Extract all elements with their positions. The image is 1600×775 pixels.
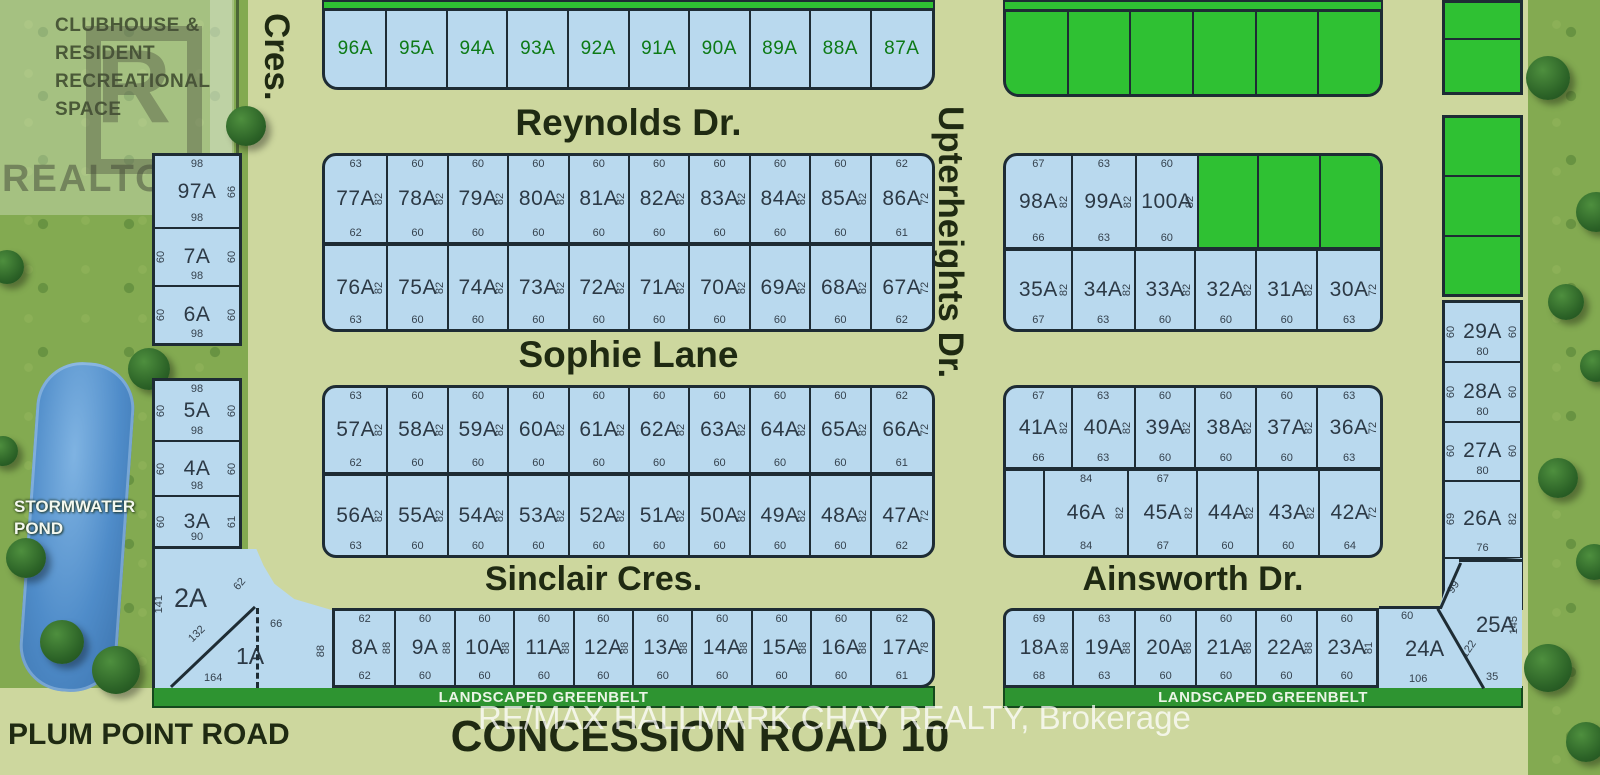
lot-76A: 638276A <box>325 246 386 329</box>
dim-bottom: 63 <box>350 315 362 326</box>
lot-row-sold-top-right <box>1003 9 1383 97</box>
dim-right: 66 <box>227 185 238 197</box>
lot-id: 82A <box>640 187 679 211</box>
lot-id: 41A <box>1019 416 1058 440</box>
lot-36A: 63637236A <box>1316 388 1380 467</box>
dim-88: 88 <box>316 645 327 657</box>
dim-bottom: 60 <box>532 228 544 239</box>
lot-sold <box>1445 38 1520 92</box>
dim-side: 82 <box>1059 421 1070 433</box>
lot-id: 93A <box>520 38 555 60</box>
dim-bottom: 84 <box>1080 541 1092 552</box>
lot-col-sold-far-right-top <box>1442 0 1523 95</box>
dim-left: 60 <box>1446 445 1457 457</box>
dim-top: 60 <box>472 391 484 402</box>
lot-12A: 60608812A <box>573 611 632 685</box>
lot-id: 32A <box>1206 278 1245 302</box>
dim-141: 141 <box>154 595 165 613</box>
lot-id: 70A <box>700 276 739 300</box>
dim-66: 66 <box>270 619 282 630</box>
lot-37A: 60608237A <box>1255 388 1316 467</box>
lot-id: 60A <box>519 418 558 442</box>
lot-id: 94A <box>460 38 495 60</box>
lot-40A: 63638240A <box>1071 388 1134 467</box>
dim-top: 60 <box>1159 391 1171 402</box>
dim-left: 60 <box>1446 326 1457 338</box>
street-label-upterheights: Upterheights Dr. <box>930 92 970 392</box>
lot-id: 46A <box>1067 501 1106 525</box>
lot-id: 91A <box>641 38 676 60</box>
dim-bottom: 61 <box>896 228 908 239</box>
lot-3A: 9060613A <box>155 495 239 546</box>
dim-bottom: 60 <box>1220 453 1232 464</box>
dim-top: 67 <box>1032 391 1044 402</box>
lot-54A: 608254A <box>447 476 507 555</box>
lot-87A: 87A <box>870 11 932 87</box>
dim-bottom: 60 <box>657 671 669 682</box>
lot-id: 83A <box>700 187 739 211</box>
dim-bottom: 62 <box>896 315 908 326</box>
dim-right: 61 <box>227 515 238 527</box>
dim-top: 60 <box>411 391 423 402</box>
dim-bottom: 60 <box>419 671 431 682</box>
lot-10A: 60608810A <box>454 611 513 685</box>
lot-id: 65A <box>821 418 860 442</box>
dim-top: 60 <box>419 614 431 625</box>
lot-sold <box>1445 235 1520 294</box>
lot-id: 16A <box>822 636 861 660</box>
dim-bottom: 63 <box>1343 453 1355 464</box>
tree-icon <box>40 620 84 664</box>
dim-top: 60 <box>713 159 725 170</box>
lot-id: 56A <box>336 504 375 528</box>
lot-id: 68A <box>821 276 860 300</box>
lot-id: 57A <box>336 418 375 442</box>
lot-id: 26A <box>1463 507 1502 531</box>
dim-top: 84 <box>1080 474 1092 485</box>
dim-top: 63 <box>1343 391 1355 402</box>
dim-right: 60 <box>227 463 238 475</box>
lot-sold <box>1317 12 1380 94</box>
dim-bottom: 62 <box>350 458 362 469</box>
lot-row-57A-66A: 63628257A60608258A60608259A60608260A6060… <box>322 385 935 475</box>
dim-bottom: 60 <box>1220 671 1232 682</box>
lot-80A: 60608280A <box>507 156 567 242</box>
lot-id: 23A <box>1327 636 1366 660</box>
dim-bottom: 63 <box>1097 453 1109 464</box>
lot-9A: 6060889A <box>394 611 453 685</box>
lot-id: 92A <box>581 38 616 60</box>
lot-id: 19A <box>1085 636 1124 660</box>
lot-row-8A-17A: 6262888A6060889A60608810A60608811A606088… <box>332 608 935 688</box>
lot-78A: 60608278A <box>386 156 446 242</box>
dim-bottom-24A: 106 <box>1409 674 1427 685</box>
dim-bottom: 60 <box>653 458 665 469</box>
lot-id: 37A <box>1267 416 1306 440</box>
lot-boundary-line <box>152 549 155 688</box>
lot-49A: 608249A <box>749 476 809 555</box>
lot-45A: 67678245A <box>1127 471 1196 555</box>
lot-boundary-dashed-line <box>256 608 259 688</box>
dim-top: 62 <box>896 159 908 170</box>
lot-id: 95A <box>399 38 434 60</box>
lot-66A: 62617266A <box>870 388 932 472</box>
lot-id: 90A <box>702 38 737 60</box>
lot-id: 86A <box>882 187 921 211</box>
dim-bottom: 63 <box>1343 315 1355 326</box>
lot-col-97A-6A: 98986697A9860607A9860606A <box>152 153 242 346</box>
dim-35: 35 <box>1486 672 1498 683</box>
lot-unlabeled <box>1006 471 1043 555</box>
lot-20A: 60608820A <box>1134 611 1194 685</box>
lot-id-2A: 2A <box>174 583 207 614</box>
lot-31A: 608231A <box>1255 251 1316 329</box>
dim-left: 60 <box>156 515 167 527</box>
dim-bottom: 62 <box>896 541 908 552</box>
lot-id: 4A <box>184 457 211 481</box>
dim-side: 82 <box>374 193 385 205</box>
dim-bottom: 98 <box>191 271 203 282</box>
dim-bottom: 98 <box>191 481 203 492</box>
dim-left: 69 <box>1446 513 1457 525</box>
street-label-cres: Cres. <box>256 2 296 112</box>
dim-side: 88 <box>442 642 453 654</box>
lot-id: 8A <box>351 636 378 660</box>
dim-right: 60 <box>1508 386 1519 398</box>
lot-sold <box>1257 156 1319 247</box>
dim-bottom: 68 <box>1033 671 1045 682</box>
tree-icon <box>1566 722 1600 762</box>
dim-top: 60 <box>775 614 787 625</box>
lot-sold <box>1067 12 1130 94</box>
dim-bottom: 60 <box>532 458 544 469</box>
dim-bottom: 63 <box>1098 671 1110 682</box>
dim-bottom: 60 <box>713 315 725 326</box>
dim-side: 82 <box>374 424 385 436</box>
dim-top: 63 <box>350 159 362 170</box>
tree-icon <box>1526 56 1570 100</box>
lot-14A: 60608814A <box>691 611 750 685</box>
stormwater-pond-label: STORMWATER POND <box>14 496 135 540</box>
lot-57A: 63628257A <box>325 388 386 472</box>
lot-id: 76A <box>336 276 375 300</box>
dim-side: 72 <box>1368 421 1379 433</box>
lot-id: 7A <box>184 245 211 269</box>
dim-bottom: 67 <box>1032 315 1044 326</box>
dim-bottom: 60 <box>593 458 605 469</box>
brokerage-watermark: RE/MAX HALLMARK CHAY REALTY, Brokerage <box>478 699 1191 737</box>
lot-id: 88A <box>823 38 858 60</box>
lot-84A: 60608284A <box>749 156 809 242</box>
lot-8A: 6262888A <box>335 611 394 685</box>
dim-side: 82 <box>1115 507 1126 519</box>
lot-83A: 60608283A <box>688 156 748 242</box>
dim-top: 60 <box>1220 614 1232 625</box>
dim-bottom: 60 <box>532 315 544 326</box>
lot-id: 38A <box>1206 416 1245 440</box>
dim-left: 60 <box>156 405 167 417</box>
dim-top: 60 <box>774 391 786 402</box>
dim-bottom: 60 <box>1220 315 1232 326</box>
dim-top: 60 <box>774 159 786 170</box>
dim-top: 60 <box>532 391 544 402</box>
lot-id: 17A <box>882 636 921 660</box>
dim-bottom: 60 <box>1280 671 1292 682</box>
dim-top: 60 <box>716 614 728 625</box>
lot-id: 61A <box>579 418 618 442</box>
dim-bottom: 60 <box>653 228 665 239</box>
dim-top: 63 <box>1098 614 1110 625</box>
lot-id: 33A <box>1146 278 1185 302</box>
lot-19A: 63638819A <box>1072 611 1134 685</box>
lot-id: 49A <box>761 504 800 528</box>
dim-164: 164 <box>204 673 222 684</box>
dim-bottom: 98 <box>191 329 203 340</box>
lot-id: 35A <box>1019 278 1058 302</box>
lot-44A: 608244A <box>1196 471 1256 555</box>
dim-top: 60 <box>593 391 605 402</box>
lot-id: 10A <box>465 636 504 660</box>
dim-right: 60 <box>1508 326 1519 338</box>
lot-92A: 92A <box>567 11 628 87</box>
lot-id: 67A <box>882 276 921 300</box>
dim-bottom: 60 <box>774 458 786 469</box>
lot-sold <box>1319 156 1380 247</box>
lot-boundary-line <box>1459 559 1523 562</box>
lot-42A: 647242A <box>1318 471 1380 555</box>
dim-top: 60 <box>1280 614 1292 625</box>
lot-id: 28A <box>1463 380 1502 404</box>
dim-top: 60 <box>834 159 846 170</box>
lot-id: 55A <box>398 504 437 528</box>
dim-bottom: 60 <box>835 671 847 682</box>
dim-bottom: 60 <box>538 671 550 682</box>
lot-4A: 9860604A <box>155 440 239 495</box>
lot-id: 85A <box>821 187 860 211</box>
lot-11A: 60608811A <box>513 611 572 685</box>
lot-29A: 80606029A <box>1445 303 1520 361</box>
tree-icon <box>92 646 140 694</box>
dim-bottom: 60 <box>713 541 725 552</box>
dim-top: 63 <box>1098 159 1110 170</box>
dim-bottom: 60 <box>713 228 725 239</box>
dim-bottom: 60 <box>1282 541 1294 552</box>
street-label-ainsworth: Ainsworth Dr. <box>1003 560 1383 599</box>
dim-top: 98 <box>191 159 203 170</box>
tree-icon <box>1538 458 1578 498</box>
lot-98A: 67668298A <box>1006 156 1071 247</box>
lot-79A: 60608279A <box>447 156 507 242</box>
dim-bottom: 64 <box>1344 541 1356 552</box>
dim-top: 60 <box>713 391 725 402</box>
lot-58A: 60608258A <box>386 388 446 472</box>
lot-59A: 60608259A <box>447 388 507 472</box>
dim-bottom: 90 <box>191 532 203 543</box>
dim-bottom: 60 <box>597 671 609 682</box>
dim-bottom: 60 <box>1159 453 1171 464</box>
lot-id: 96A <box>338 38 373 60</box>
dim-top: 60 <box>1281 391 1293 402</box>
dim-bottom: 63 <box>1098 233 1110 244</box>
lot-88A: 88A <box>809 11 870 87</box>
lot-34A: 638234A <box>1071 251 1134 329</box>
dim-bottom: 60 <box>472 228 484 239</box>
lot-41A: 67668241A <box>1006 388 1071 467</box>
lot-id: 63A <box>700 418 739 442</box>
dim-top: 60 <box>657 614 669 625</box>
dim-right: 60 <box>227 405 238 417</box>
dim-top: 60 <box>593 159 605 170</box>
lot-13A: 60608813A <box>632 611 691 685</box>
lot-55A: 608255A <box>386 476 446 555</box>
lot-32A: 608232A <box>1194 251 1255 329</box>
dim-top-24A: 60 <box>1401 611 1413 622</box>
dim-bottom: 60 <box>593 315 605 326</box>
lot-id: 71A <box>640 276 679 300</box>
lot-id: 27A <box>1463 439 1502 463</box>
lot-id: 51A <box>640 504 679 528</box>
lot-97A: 98986697A <box>155 156 239 227</box>
lot-sold <box>1445 3 1520 38</box>
dim-132: 132 <box>187 624 208 645</box>
lot-id: 79A <box>459 187 498 211</box>
dim-bottom: 60 <box>1281 315 1293 326</box>
dim-top: 60 <box>538 614 550 625</box>
lot-23A: 60608123A <box>1316 611 1376 685</box>
dim-bottom: 60 <box>653 541 665 552</box>
lot-21A: 60608821A <box>1195 611 1255 685</box>
lot-id: 74A <box>459 276 498 300</box>
lot-90A: 90A <box>688 11 749 87</box>
dim-bottom: 60 <box>472 458 484 469</box>
lot-id: 97A <box>178 180 217 204</box>
lot-35A: 678235A <box>1006 251 1071 329</box>
dim-bottom: 66 <box>1032 233 1044 244</box>
lot-id: 6A <box>184 303 211 327</box>
lot-93A: 93A <box>506 11 567 87</box>
dim-side: 82 <box>1122 284 1133 296</box>
dim-bottom: 60 <box>774 228 786 239</box>
lot-id-24A: 24A <box>1405 636 1444 662</box>
lot-id: 15A <box>762 636 801 660</box>
dim-bottom: 60 <box>478 671 490 682</box>
lot-id: 14A <box>703 636 742 660</box>
dim-bottom: 60 <box>716 671 728 682</box>
lot-17A: 62617817A <box>870 611 932 685</box>
dim-top: 60 <box>1220 391 1232 402</box>
street-label-reynolds: Reynolds Dr. <box>322 102 935 144</box>
lot-row-56A-47A: 638256A608255A608254A608253A608252A60825… <box>322 473 935 558</box>
lot-74A: 608274A <box>447 246 507 329</box>
dim-bottom: 98 <box>191 213 203 224</box>
lot-sold <box>1192 12 1255 94</box>
lot-73A: 608273A <box>507 246 567 329</box>
lot-96A: 96A <box>325 11 385 87</box>
lot-6A: 9860606A <box>155 285 239 343</box>
dim-top: 60 <box>532 159 544 170</box>
dim-bottom: 60 <box>1281 453 1293 464</box>
lot-id: 29A <box>1463 320 1502 344</box>
realtor-logo-r-icon: R <box>96 28 171 147</box>
lot-id: 58A <box>398 418 437 442</box>
dim-bottom: 60 <box>532 541 544 552</box>
lot-33A: 608233A <box>1134 251 1195 329</box>
dim-side: 82 <box>1059 195 1070 207</box>
lot-46A: 84848246A <box>1043 471 1128 555</box>
lot-id: 5A <box>184 399 211 423</box>
lot-id: 40A <box>1084 416 1123 440</box>
lot-89A: 89A <box>749 11 810 87</box>
dim-side: 88 <box>1060 642 1071 654</box>
lot-id: 42A <box>1330 501 1369 525</box>
dim-top: 63 <box>350 391 362 402</box>
lot-67A: 627267A <box>870 246 932 329</box>
lot-28A: 80606028A <box>1445 361 1520 420</box>
dim-right: 60 <box>1508 445 1519 457</box>
lot-row-96A-87A: 96A95A94A93A92A91A90A89A88A87A <box>322 8 935 90</box>
dim-bottom: 60 <box>593 228 605 239</box>
lot-id: 11A <box>525 636 562 660</box>
lot-71A: 608271A <box>628 246 688 329</box>
lot-id: 66A <box>882 418 921 442</box>
dim-side: 88 <box>382 642 393 654</box>
dim-top: 60 <box>472 159 484 170</box>
tree-icon <box>1524 644 1572 692</box>
lot-id: 39A <box>1146 416 1185 440</box>
dim-bottom: 63 <box>350 541 362 552</box>
lot-56A: 638256A <box>325 476 386 555</box>
dim-top: 69 <box>1033 614 1045 625</box>
dim-left: 60 <box>156 309 167 321</box>
lot-id: 53A <box>519 504 558 528</box>
dim-side: 82 <box>1184 507 1195 519</box>
site-plan-map: CLUBHOUSE & RESIDENT RECREATIONAL SPACE … <box>0 0 1600 775</box>
lot-95A: 95A <box>385 11 446 87</box>
lot-48A: 608248A <box>809 476 869 555</box>
dim-bottom: 98 <box>191 426 203 437</box>
lot-62A: 60608262A <box>628 388 688 472</box>
dim-top: 60 <box>653 159 665 170</box>
lot-100A: 606082100A <box>1135 156 1197 247</box>
lot-72A: 608272A <box>568 246 628 329</box>
dim-bottom: 80 <box>1476 466 1488 477</box>
lot-99A: 63638299A <box>1071 156 1135 247</box>
lot-39A: 60608239A <box>1134 388 1195 467</box>
dim-bottom: 80 <box>1476 347 1488 358</box>
lot-id: 12A <box>584 636 623 660</box>
lot-id: 18A <box>1020 636 1059 660</box>
dim-top: 67 <box>1157 474 1169 485</box>
lot-85A: 60608285A <box>809 156 869 242</box>
lot-row-41A-36A: 67668241A63638240A60608239A60608238A6060… <box>1003 385 1383 470</box>
street-label-plum-point: PLUM POINT ROAD <box>8 718 290 752</box>
lot-sold <box>1197 156 1257 247</box>
lot-65A: 60608265A <box>809 388 869 472</box>
lot-id: 47A <box>882 504 921 528</box>
tree-icon <box>1548 284 1584 320</box>
dim-side: 82 <box>374 509 385 521</box>
lot-id: 36A <box>1330 416 1369 440</box>
lot-id: 34A <box>1084 278 1123 302</box>
dim-bottom: 76 <box>1476 543 1488 554</box>
lot-51A: 608251A <box>628 476 688 555</box>
lot-id: 30A <box>1330 278 1369 302</box>
lot-82A: 60608282A <box>628 156 688 242</box>
dim-bottom: 60 <box>834 315 846 326</box>
dim-side: 72 <box>1368 284 1379 296</box>
lot-id: 62A <box>640 418 679 442</box>
dim-bottom: 60 <box>472 541 484 552</box>
